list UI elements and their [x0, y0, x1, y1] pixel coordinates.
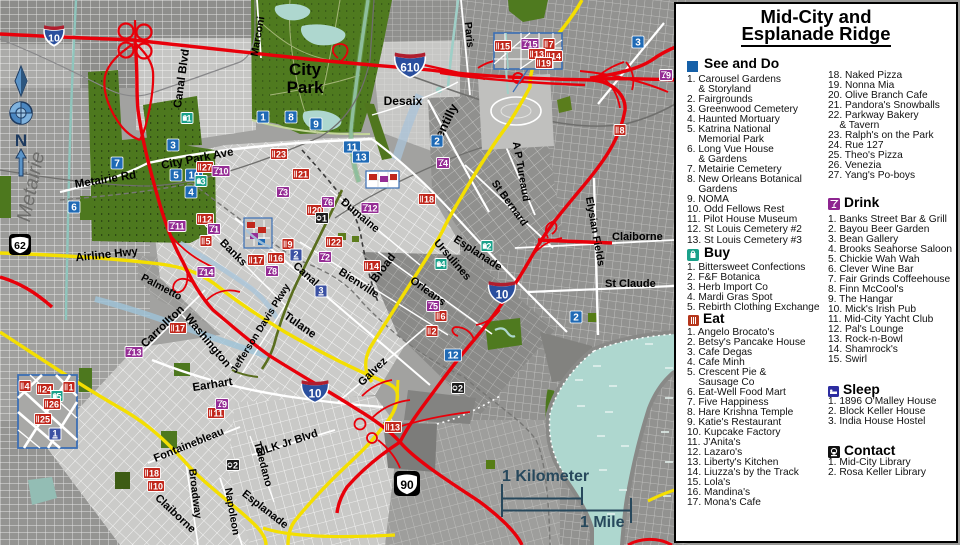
svg-text:3: 3 — [635, 38, 641, 49]
svg-text:90: 90 — [400, 478, 414, 492]
svg-text:17: 17 — [253, 255, 263, 265]
svg-text:6: 6 — [71, 203, 77, 214]
svg-text:9: 9 — [313, 120, 319, 131]
svg-text:62: 62 — [14, 240, 26, 252]
svg-text:N: N — [15, 131, 27, 150]
svg-text:610: 610 — [400, 63, 419, 75]
svg-text:4: 4 — [443, 158, 448, 168]
svg-text:1: 1 — [52, 429, 57, 439]
svg-text:16: 16 — [273, 253, 283, 263]
svg-text:12: 12 — [367, 203, 377, 213]
svg-text:Desaix: Desaix — [384, 94, 423, 108]
svg-text:26: 26 — [49, 399, 59, 409]
svg-text:10: 10 — [309, 389, 322, 401]
svg-text:2: 2 — [573, 313, 579, 324]
svg-text:3: 3 — [170, 141, 176, 152]
svg-text:13: 13 — [390, 422, 400, 432]
svg-text:3: 3 — [318, 286, 323, 296]
svg-text:21: 21 — [298, 169, 308, 179]
svg-text:7: 7 — [114, 159, 120, 170]
svg-text:6: 6 — [328, 197, 333, 207]
svg-text:2: 2 — [325, 252, 330, 262]
svg-text:5: 5 — [433, 301, 438, 311]
svg-text:2: 2 — [486, 241, 491, 251]
svg-text:12: 12 — [202, 214, 212, 224]
svg-text:1: 1 — [214, 224, 219, 234]
svg-text:11: 11 — [175, 221, 185, 231]
svg-text:3: 3 — [283, 187, 288, 197]
svg-text:12: 12 — [447, 351, 459, 362]
svg-text:2: 2 — [434, 137, 440, 148]
svg-text:City: City — [289, 60, 322, 79]
svg-text:18: 18 — [424, 194, 434, 204]
svg-text:4: 4 — [440, 259, 445, 269]
svg-text:17: 17 — [175, 323, 185, 333]
svg-text:18: 18 — [149, 468, 159, 478]
svg-text:1: 1 — [260, 113, 266, 124]
svg-text:10: 10 — [153, 481, 163, 491]
svg-text:15: 15 — [500, 41, 510, 51]
svg-text:1: 1 — [322, 213, 327, 223]
svg-text:14: 14 — [203, 267, 213, 277]
svg-text:25: 25 — [40, 414, 50, 424]
svg-text:St Claude: St Claude — [605, 278, 656, 290]
svg-text:10: 10 — [218, 166, 228, 176]
svg-text:2: 2 — [233, 460, 238, 470]
svg-text:5: 5 — [173, 171, 179, 182]
svg-text:27: 27 — [202, 162, 212, 172]
svg-text:14: 14 — [369, 261, 379, 271]
svg-text:24: 24 — [42, 384, 52, 394]
svg-text:5: 5 — [205, 236, 210, 246]
svg-text:1: 1 — [68, 382, 73, 392]
svg-text:8: 8 — [272, 266, 277, 276]
svg-text:2: 2 — [431, 326, 436, 336]
svg-text:1 Mile: 1 Mile — [580, 514, 625, 531]
svg-text:7: 7 — [548, 39, 553, 49]
svg-text:1 Kilometer: 1 Kilometer — [502, 468, 589, 485]
svg-text:2: 2 — [293, 250, 298, 260]
svg-text:22: 22 — [331, 237, 341, 247]
svg-text:10: 10 — [48, 33, 60, 45]
svg-text:9: 9 — [666, 70, 671, 80]
svg-text:4: 4 — [24, 381, 29, 391]
svg-text:Claiborne: Claiborne — [612, 231, 663, 243]
svg-text:15: 15 — [527, 39, 537, 49]
svg-text:6: 6 — [440, 311, 445, 321]
svg-text:19: 19 — [541, 58, 551, 68]
svg-text:13: 13 — [355, 153, 367, 164]
svg-text:4: 4 — [188, 188, 194, 199]
svg-text:23: 23 — [276, 149, 286, 159]
svg-text:2: 2 — [458, 383, 463, 393]
svg-text:9: 9 — [287, 239, 292, 249]
svg-text:8: 8 — [619, 125, 624, 135]
svg-text:10: 10 — [496, 290, 509, 302]
svg-text:3: 3 — [200, 176, 205, 186]
svg-text:9: 9 — [222, 399, 227, 409]
svg-text:8: 8 — [288, 113, 294, 124]
svg-text:Park: Park — [287, 78, 324, 97]
svg-text:1: 1 — [186, 113, 191, 123]
svg-text:13: 13 — [131, 347, 141, 357]
